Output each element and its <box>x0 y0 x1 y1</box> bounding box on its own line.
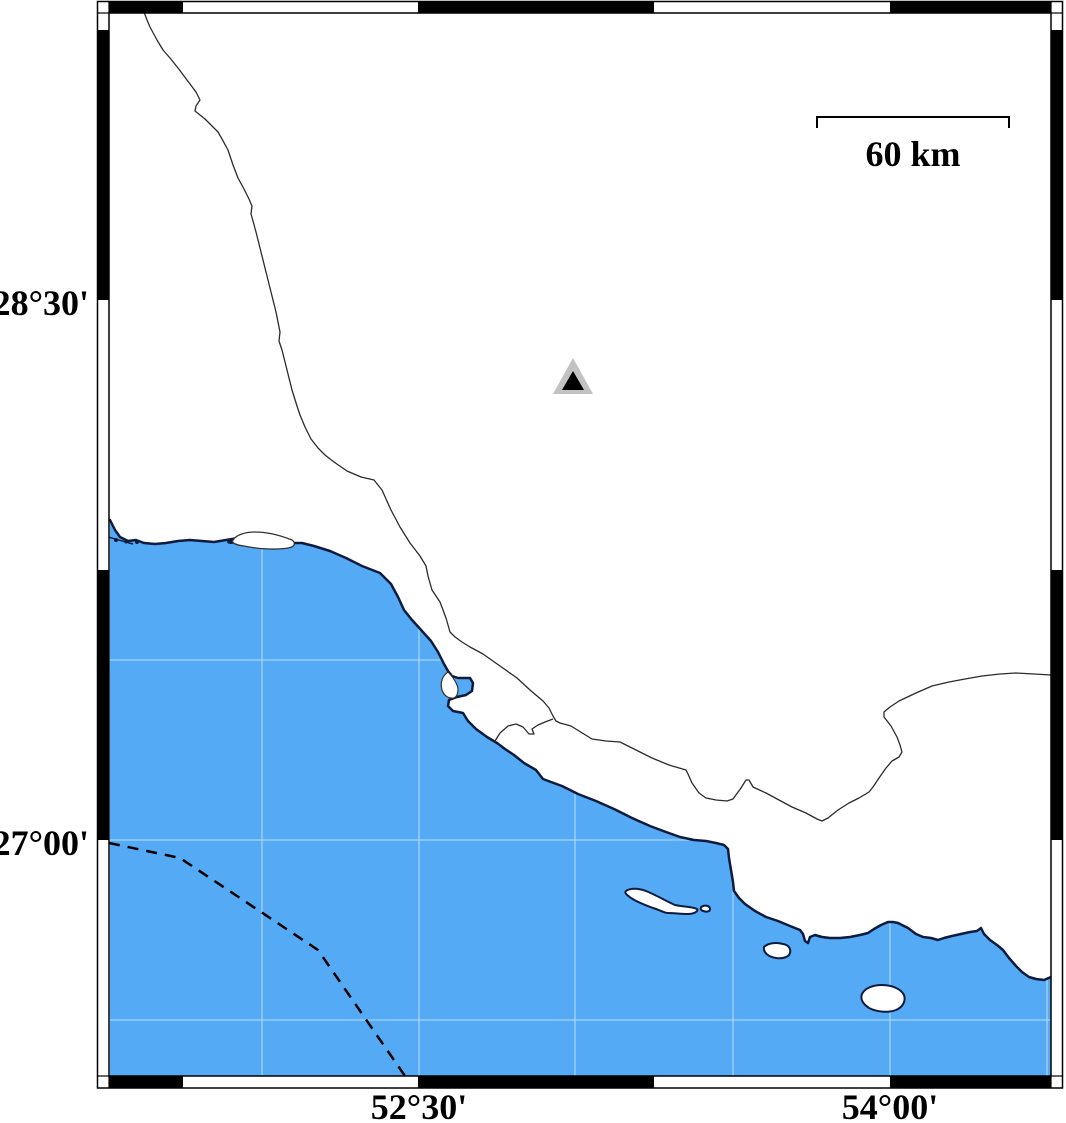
islet-small <box>701 906 710 912</box>
map-svg: 60 km 28°30' 27°00 <box>0 0 1066 1123</box>
island-oval <box>764 943 790 958</box>
scale-bar-label: 60 km <box>865 134 960 174</box>
island-round <box>861 985 904 1012</box>
lon-label-52-30: 52°30' <box>371 1087 467 1123</box>
map-figure: 60 km 28°30' 27°00 <box>0 0 1066 1123</box>
lat-label-28-30: 28°30' <box>0 283 89 323</box>
lon-label-54-00: 54°00' <box>842 1087 938 1123</box>
lat-label-27-00: 27°00' <box>0 823 89 863</box>
